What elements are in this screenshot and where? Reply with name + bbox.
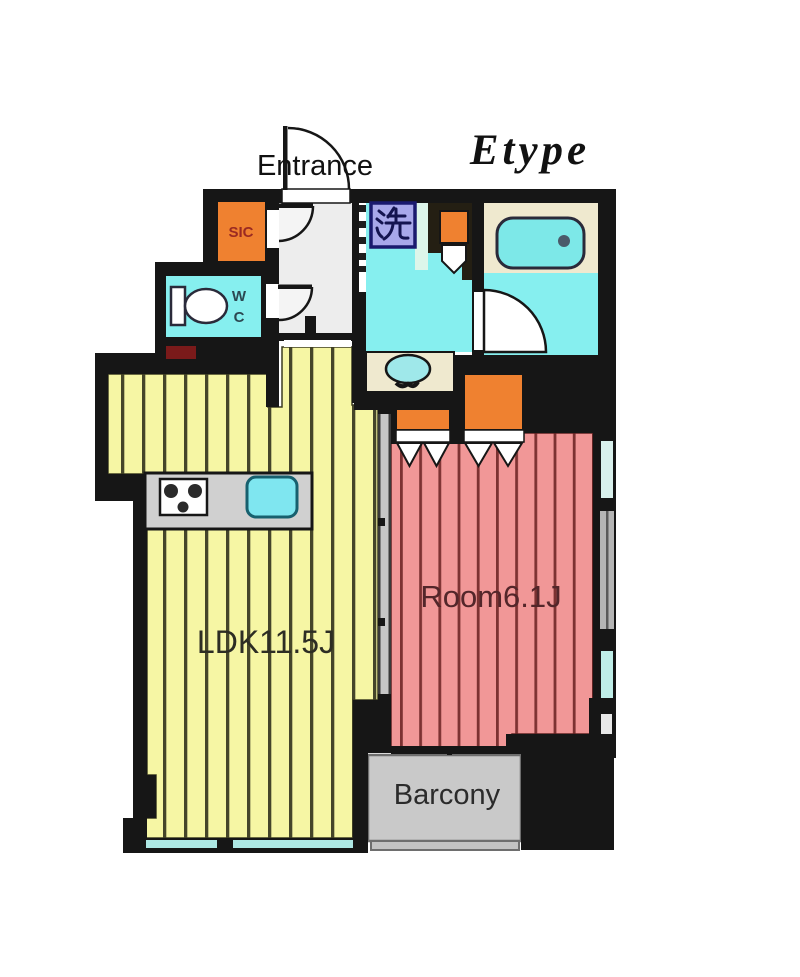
svg-text:Etype: Etype — [469, 127, 590, 174]
svg-text:LDK11.5J: LDK11.5J — [197, 624, 335, 660]
svg-text:SIC: SIC — [228, 224, 253, 241]
svg-text:C: C — [234, 309, 245, 326]
svg-text:Barcony: Barcony — [394, 779, 501, 811]
svg-text:Room6.1J: Room6.1J — [420, 579, 561, 614]
svg-text:Entrance: Entrance — [257, 150, 373, 182]
svg-text:W: W — [232, 288, 247, 305]
